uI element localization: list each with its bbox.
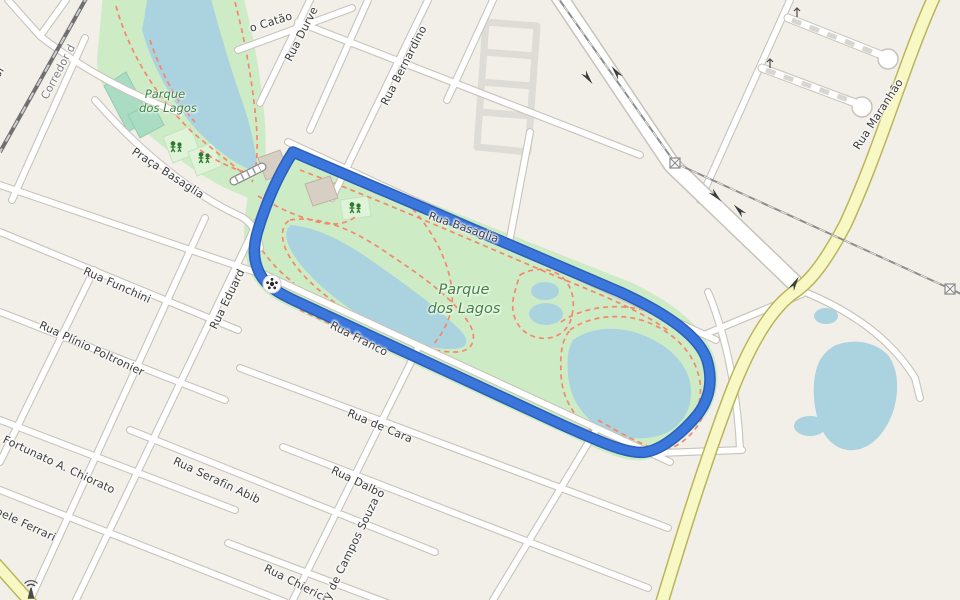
east-pond-small (794, 416, 826, 436)
map-canvas[interactable]: Corredor d ol o Catão Rua Durve Rua Bern… (0, 0, 960, 600)
main-park-label-line2: dos Lagos (428, 301, 501, 317)
playground-area (340, 196, 371, 220)
twin-pond-upper (531, 282, 559, 300)
ball-marker-icon (263, 275, 281, 293)
small-park-label-line1: Parque (145, 87, 185, 101)
main-park-label-line1: Parque (439, 282, 490, 298)
small-park-label-line2: dos Lagos (139, 101, 197, 115)
twin-pond-lower (529, 303, 563, 325)
